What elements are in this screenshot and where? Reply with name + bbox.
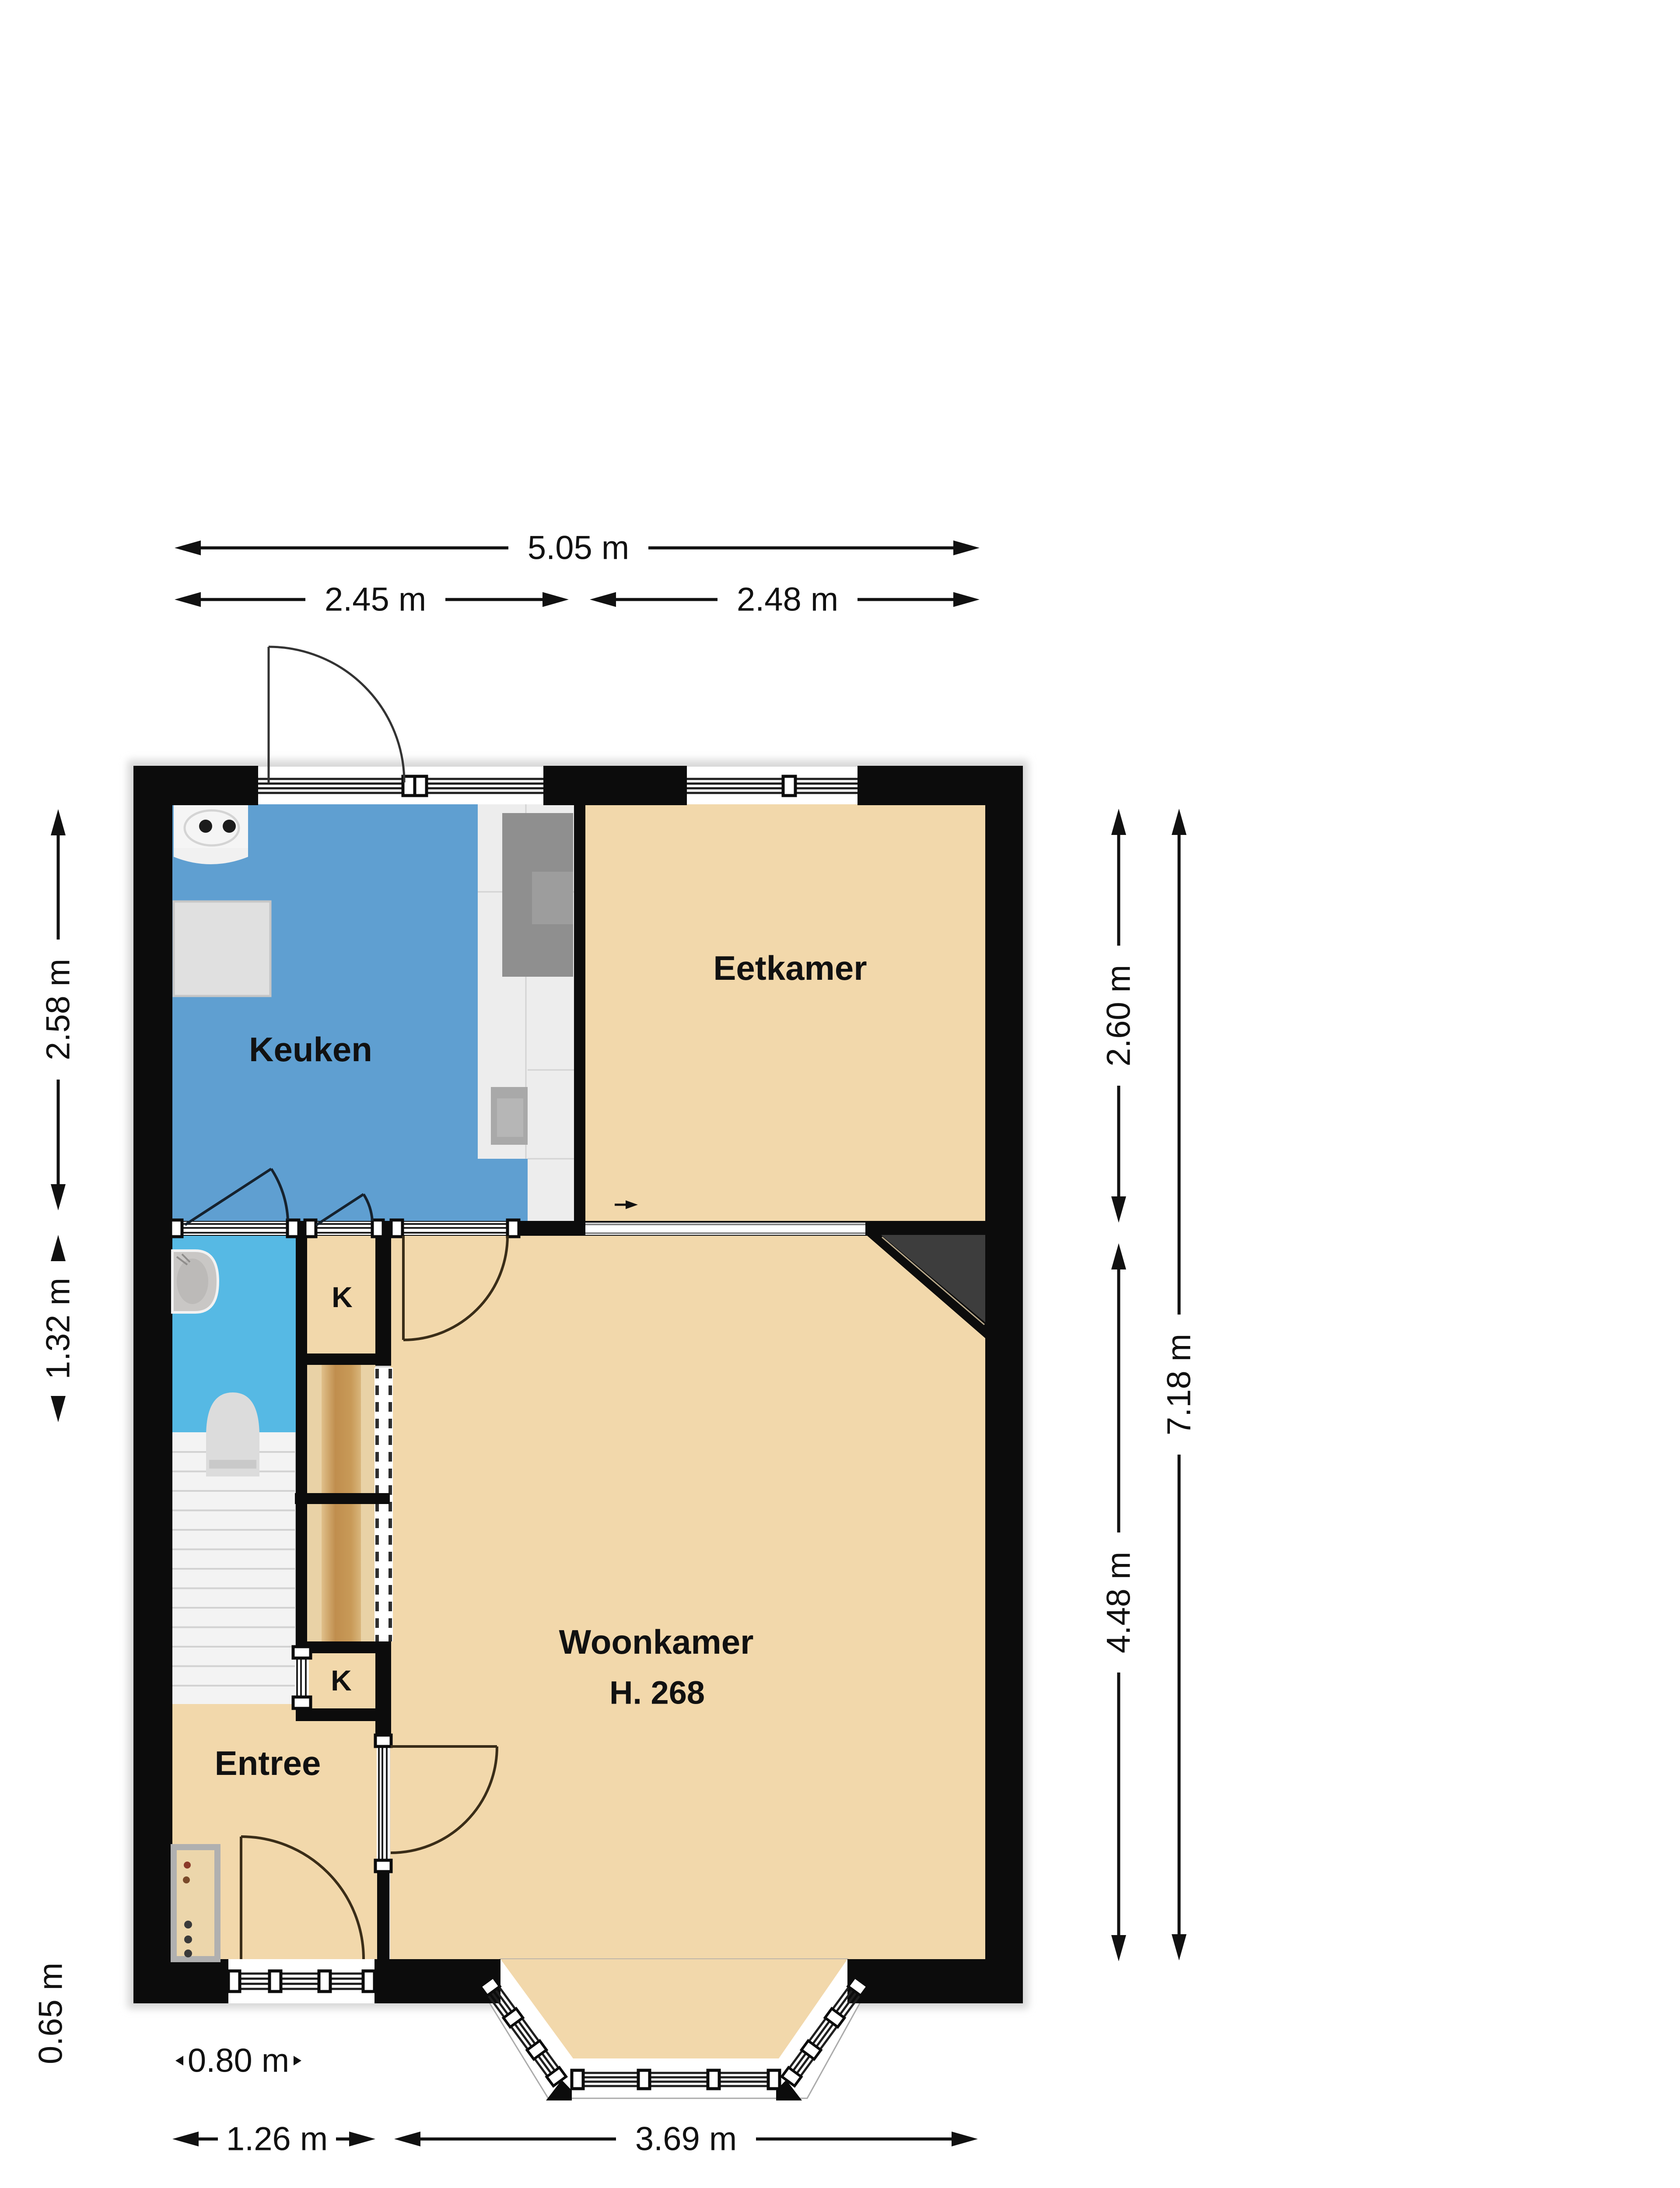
svg-text:2.58 m: 2.58 m [40,959,77,1060]
svg-text:4.48 m: 4.48 m [1100,1552,1137,1653]
svg-text:1.26 m: 1.26 m [226,2121,328,2158]
svg-text:0.80 m: 0.80 m [188,2042,289,2079]
svg-text:2.60 m: 2.60 m [1100,965,1137,1066]
svg-text:Eetkamer: Eetkamer [713,949,867,987]
svg-text:Keuken: Keuken [249,1030,372,1069]
svg-text:7.18 m: 7.18 m [1161,1334,1198,1435]
svg-text:5.05 m: 5.05 m [528,529,629,567]
svg-text:H. 268: H. 268 [609,1675,705,1711]
svg-text:Woonkamer: Woonkamer [559,1623,754,1661]
svg-text:K: K [331,1664,352,1697]
svg-text:3.69 m: 3.69 m [635,2121,737,2158]
svg-text:K: K [332,1281,353,1313]
svg-text:2.48 m: 2.48 m [737,581,838,618]
svg-text:0.65 m: 0.65 m [32,1963,70,2064]
svg-text:1.32 m: 1.32 m [40,1278,77,1379]
svg-text:2.45 m: 2.45 m [325,581,426,618]
svg-text:Entree: Entree [215,1744,321,1782]
